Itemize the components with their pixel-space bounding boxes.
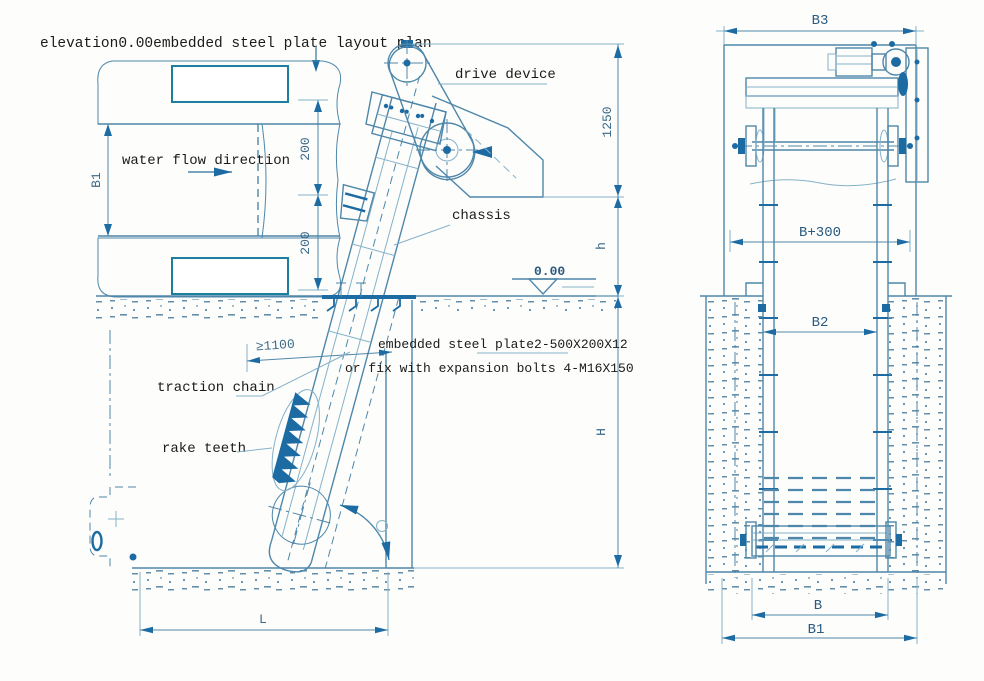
side-plate [906,48,928,182]
svg-text:B3: B3 [812,13,829,29]
plan-view: water flow direction B1 200 200 [89,61,341,297]
svg-text:B+300: B+300 [799,225,841,241]
dim-b3: B3 [716,13,924,45]
front-view: B3 [700,13,952,644]
label-plate-spec-1: embedded steel plate2-500X200X12 [378,337,628,352]
dim-b1-plan: B1 [89,124,112,236]
dim-H: H [594,428,609,436]
label-water-flow: water flow direction [122,153,290,169]
drawing-svg: elevation0.00embedded steel plate layout… [0,0,984,681]
svg-text:B: B [814,598,822,614]
dim-200-chain: 200 200 [298,100,328,290]
water-level-icon: 0.00 [512,264,596,294]
label-water-level: 0.00 [534,264,565,279]
dim-b2: B2 [763,315,877,332]
embedded-plate-bottom [172,258,288,294]
label-traction-chain: traction chain [157,380,275,396]
svg-text:B2: B2 [812,315,829,331]
engineering-drawing: elevation0.00embedded steel plate layout… [0,0,984,681]
dim-b300: B+300 [730,225,910,252]
svg-text:B1: B1 [808,622,825,638]
label-rake-teeth: rake teeth [162,441,246,457]
elevation-view: 0.00 1250 h H ≥1100 [90,40,634,636]
drawing-title: elevation0.00embedded steel plate layout… [40,36,432,52]
svg-text:L: L [259,612,267,627]
inclination-angle-arc [340,505,389,560]
frame-break-line [750,179,896,186]
svg-text:B1: B1 [89,172,104,188]
svg-text:≥1100: ≥1100 [255,337,295,355]
dim-1250: 1250 [600,106,615,137]
svg-text:200: 200 [298,137,313,160]
head-shaft [732,108,913,166]
label-chassis: chassis [452,208,511,224]
label-plate-spec-2: or fix with expansion bolts 4-M16X150 [345,361,634,376]
motor [828,41,909,96]
bottom-sprocket [260,473,343,556]
inlet-pipe [90,487,137,568]
top-beam [746,78,898,108]
embedded-plate-top [172,66,288,102]
dim-h: h [594,242,609,250]
svg-text:200: 200 [298,231,313,254]
machine-body [242,64,456,580]
screen-dashes [764,478,876,538]
label-drive-device: drive device [455,67,556,83]
